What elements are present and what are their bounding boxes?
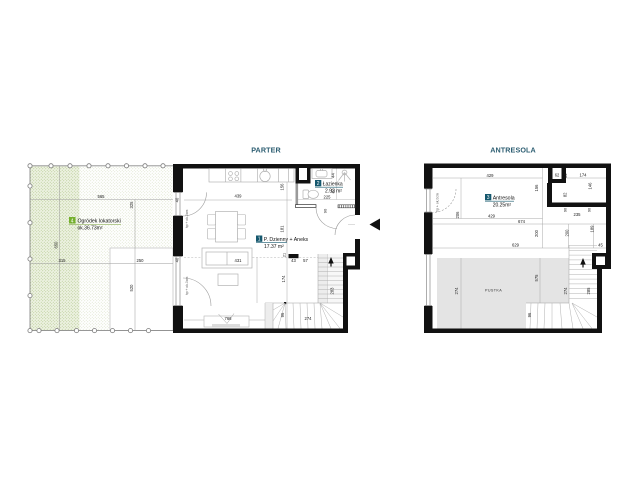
svg-text:146: 146	[588, 182, 593, 190]
svg-text:43: 43	[291, 258, 296, 263]
svg-text:45: 45	[598, 243, 603, 248]
svg-text:90: 90	[323, 208, 328, 213]
svg-text:21: 21	[283, 253, 287, 257]
svg-text:189: 189	[590, 225, 595, 233]
svg-text:90: 90	[564, 208, 568, 212]
svg-text:565: 565	[98, 194, 106, 199]
svg-text:225: 225	[324, 194, 332, 199]
svg-text:200: 200	[534, 229, 539, 237]
svg-text:235: 235	[574, 212, 582, 217]
svg-text:hp + ok.0cm: hp + ok.0cm	[436, 193, 440, 212]
svg-text:2.93 m²: 2.93 m²	[325, 189, 342, 195]
svg-text:200: 200	[565, 229, 570, 237]
svg-text:174: 174	[281, 275, 286, 283]
svg-text:439: 439	[235, 194, 243, 199]
svg-text:520: 520	[129, 284, 134, 292]
svg-text:82: 82	[563, 192, 568, 197]
svg-text:PUSTKA: PUSTKA	[485, 288, 502, 292]
svg-text:20.25m²: 20.25m²	[493, 203, 512, 209]
svg-text:3: 3	[487, 195, 490, 201]
svg-text:575: 575	[534, 274, 539, 282]
svg-text:PARTER: PARTER	[251, 146, 281, 155]
svg-text:315: 315	[59, 258, 67, 263]
svg-text:431: 431	[235, 258, 243, 263]
svg-text:P. Dzienny + Aneks: P. Dzienny + Aneks	[264, 237, 309, 243]
svg-text:40: 40	[174, 257, 179, 262]
svg-text:650: 650	[54, 241, 59, 249]
svg-text:174: 174	[580, 173, 588, 178]
svg-text:62: 62	[555, 173, 560, 178]
svg-text:2: 2	[317, 181, 320, 187]
svg-text:4: 4	[71, 218, 74, 224]
svg-text:hp + ok.0cm: hp + ok.0cm	[185, 210, 189, 229]
svg-text:274: 274	[563, 287, 568, 295]
svg-text:hp + ok.0cm: hp + ok.0cm	[185, 277, 189, 296]
svg-text:250: 250	[137, 258, 145, 263]
svg-text:40: 40	[174, 197, 179, 202]
svg-text:57: 57	[303, 258, 308, 263]
svg-text:64: 64	[563, 173, 568, 178]
svg-text:17.37 m²: 17.37 m²	[264, 244, 284, 250]
svg-text:181: 181	[280, 225, 285, 233]
svg-text:274: 274	[454, 287, 459, 295]
svg-text:Ogródek lokatorski: Ogródek lokatorski	[78, 219, 121, 225]
svg-text:156: 156	[280, 183, 285, 191]
svg-text:766: 766	[225, 316, 233, 321]
svg-text:429: 429	[488, 213, 496, 218]
svg-text:44: 44	[331, 173, 336, 178]
svg-text:674: 674	[518, 219, 526, 224]
svg-text:96: 96	[527, 312, 532, 317]
svg-text:629: 629	[512, 242, 520, 247]
svg-text:ANTRESOLA: ANTRESOLA	[490, 146, 536, 155]
svg-text:Łazienka: Łazienka	[323, 181, 343, 187]
svg-text:325: 325	[129, 201, 134, 209]
svg-text:429: 429	[487, 173, 495, 178]
svg-text:274: 274	[305, 316, 313, 321]
svg-text:ok.36.73m²: ok.36.73m²	[78, 225, 103, 231]
svg-text:156: 156	[534, 184, 539, 192]
svg-text:Antresola: Antresola	[493, 195, 515, 201]
svg-text:96: 96	[280, 312, 285, 317]
svg-text:285: 285	[586, 287, 591, 295]
svg-text:90: 90	[588, 208, 592, 212]
svg-text:1: 1	[258, 237, 261, 243]
svg-text:206: 206	[455, 211, 460, 219]
svg-text:283: 283	[330, 287, 335, 295]
